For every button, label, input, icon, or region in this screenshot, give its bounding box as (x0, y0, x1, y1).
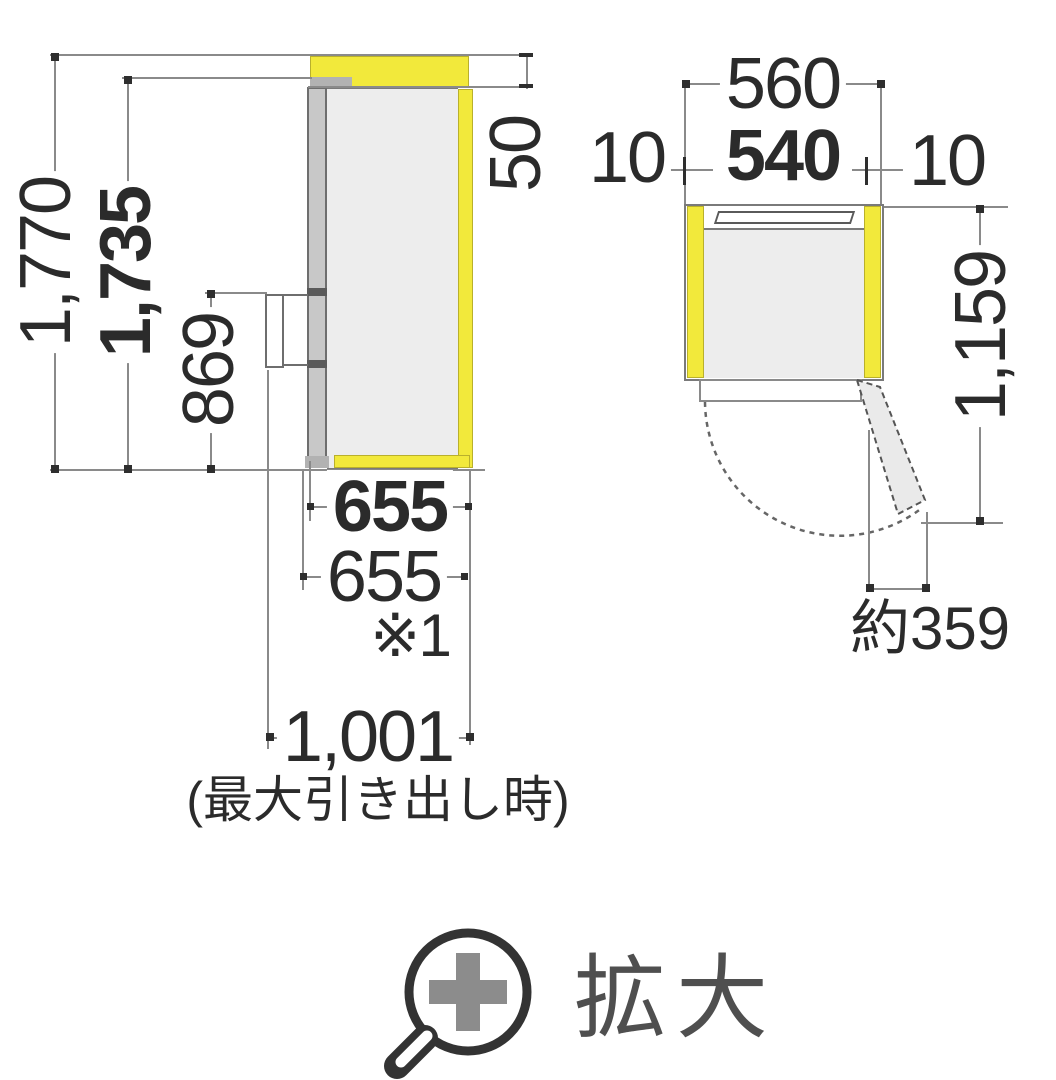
dim-line (880, 83, 882, 204)
dim-end (682, 80, 690, 88)
dim-top-clearance: 50 (479, 110, 553, 198)
dim-tick (519, 84, 533, 88)
dim-right-clearance: 10 (903, 124, 991, 198)
handle-connector (283, 294, 308, 296)
dim-tick (683, 157, 686, 185)
magnifier-plus-icon (383, 916, 548, 1080)
fridge-door-side (307, 87, 327, 461)
door-handle-top (714, 211, 855, 224)
dim-door-protrusion: 約359 (844, 598, 1016, 660)
dim-end (124, 76, 132, 84)
dim-line (309, 461, 311, 521)
handle-connector (283, 364, 308, 366)
enlarge-label: 拡大 (574, 953, 778, 1045)
footnote-ref: ※1 (364, 605, 456, 667)
dim-tick (865, 157, 868, 185)
dim-end (976, 517, 984, 525)
cabinet-side-body (327, 87, 458, 470)
dim-end (124, 465, 132, 473)
dim-line (122, 77, 312, 79)
enlarge-button[interactable]: 拡大 (383, 916, 778, 1080)
dim-line (684, 83, 686, 204)
dim-line (921, 522, 1003, 524)
door-closed-top (699, 379, 862, 402)
dim-total-height: 1,770 (9, 171, 83, 353)
dim-end (465, 503, 472, 510)
dim-end (51, 53, 59, 61)
dim-max-pullout: 1,001 (277, 700, 459, 774)
dim-line (469, 470, 471, 745)
dim-end (307, 503, 314, 510)
refrigerator-dimension-diagram: 1,770 1,735 869 50 655 655 ※1 1,001 (最大引… (0, 0, 1056, 1080)
dim-body-width: 540 (720, 119, 846, 193)
dim-total-width: 560 (720, 47, 846, 121)
dim-end (866, 584, 874, 592)
dim-end (207, 465, 215, 473)
dim-end (922, 584, 930, 592)
dim-left-clearance: 10 (583, 121, 671, 195)
dim-end (207, 290, 215, 298)
dim-line (267, 370, 269, 749)
dim-body-height: 1,735 (89, 181, 163, 363)
door-gasket-band (307, 360, 327, 368)
dim-tick (519, 53, 533, 57)
dim-line (926, 512, 928, 589)
fridge-top-line (308, 86, 528, 88)
dim-end (877, 80, 885, 88)
dim-line (868, 430, 870, 590)
dim-line (50, 54, 528, 56)
dim-end (51, 465, 59, 473)
dim-end (266, 733, 274, 741)
dim-end (300, 573, 307, 580)
max-pullout-caption: (最大引き出し時) (180, 774, 575, 826)
dim-open-door-depth: 1,159 (944, 245, 1018, 427)
dim-depth: 655 (327, 470, 453, 544)
cabinet-top-body (704, 228, 864, 378)
dim-end (466, 733, 474, 741)
dim-line (869, 588, 927, 590)
dim-line (884, 206, 1008, 208)
dim-line (302, 470, 304, 590)
dim-end (976, 205, 984, 213)
door-swing-arc (705, 402, 922, 536)
right-clearance-band (864, 206, 881, 378)
left-clearance-band (687, 206, 704, 378)
rear-clearance-band (458, 89, 473, 468)
door-handle-side (265, 294, 284, 368)
dim-line (852, 169, 905, 171)
dim-handle-height: 869 (172, 307, 246, 433)
dim-end (461, 573, 468, 580)
door-gasket-band (307, 288, 327, 296)
